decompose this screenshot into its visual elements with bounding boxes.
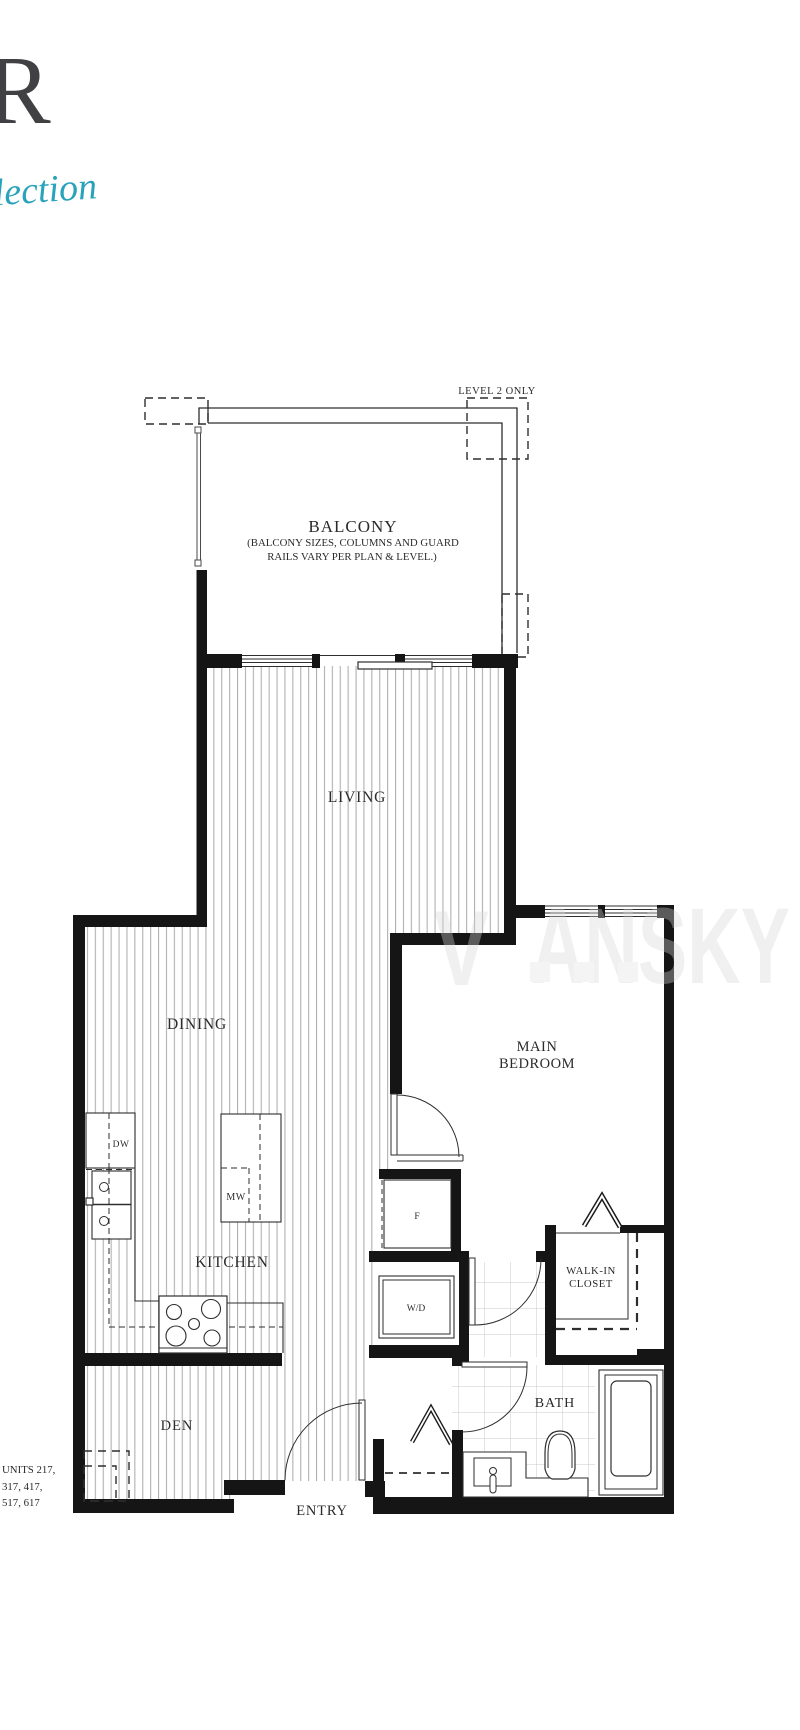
svg-text:ANSKY: ANSKY: [531, 886, 790, 1006]
svg-text:317, 417,: 317, 417,: [2, 1481, 43, 1493]
svg-text:UNITS 217,: UNITS 217,: [2, 1464, 56, 1476]
svg-text:RAILS VARY PER PLAN & LEVEL.): RAILS VARY PER PLAN & LEVEL.): [267, 551, 437, 563]
svg-text:MW: MW: [226, 1192, 245, 1203]
svg-text:DINING: DINING: [167, 1016, 227, 1033]
svg-text:KITCHEN: KITCHEN: [195, 1254, 269, 1271]
svg-text:ENTRY: ENTRY: [296, 1503, 348, 1519]
svg-text:LIVING: LIVING: [328, 789, 386, 806]
svg-text:V: V: [434, 890, 489, 1009]
svg-text:BATH: BATH: [535, 1396, 576, 1411]
svg-text:W/D: W/D: [407, 1304, 426, 1314]
svg-text:(BALCONY SIZES, COLUMNS AND GU: (BALCONY SIZES, COLUMNS AND GUARD: [247, 537, 459, 549]
svg-text:BALCONY: BALCONY: [308, 517, 397, 536]
svg-text:MAIN: MAIN: [517, 1039, 558, 1055]
svg-text:LEVEL 2 ONLY: LEVEL 2 ONLY: [458, 386, 535, 397]
svg-text:517, 617: 517, 617: [2, 1497, 40, 1509]
svg-text:DEN: DEN: [161, 1418, 194, 1434]
svg-text:llection: llection: [0, 165, 98, 215]
svg-text:R: R: [0, 37, 51, 144]
svg-text:CLOSET: CLOSET: [569, 1278, 613, 1290]
svg-text:BEDROOM: BEDROOM: [499, 1056, 575, 1072]
svg-text:DW: DW: [113, 1140, 130, 1150]
svg-text:WALK-IN: WALK-IN: [566, 1265, 616, 1277]
svg-text:F: F: [414, 1212, 419, 1222]
